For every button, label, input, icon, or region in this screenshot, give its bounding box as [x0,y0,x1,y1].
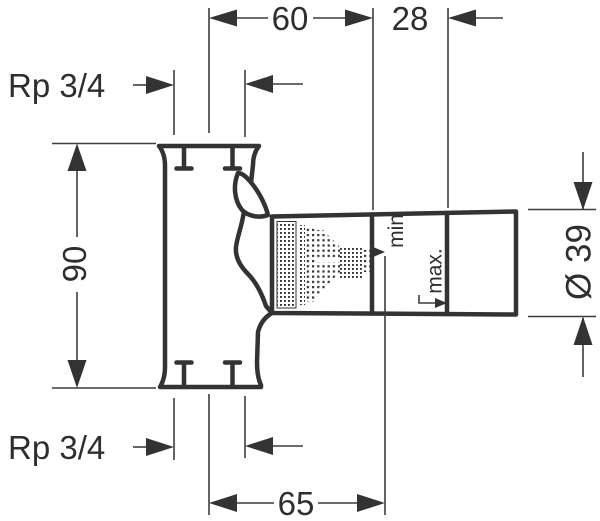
dim-90: 90 [56,144,93,389]
thread-top-label: Rp 3/4 [8,67,105,104]
dim-arrow-down-icon [574,182,593,210]
dim-arrow-right-icon [357,494,385,512]
technical-drawing: 60 28 Rp 3/4 90 Rp 3/4 65 [0,0,600,521]
outlet-teardrop [235,173,268,217]
thread-callout-top: Rp 3/4 [8,67,303,104]
thread-bottom-label: Rp 3/4 [8,429,105,466]
leader-arrow-left-icon [245,437,273,455]
dim-65: 65 [209,485,385,521]
dim-28-label: 28 [392,0,429,37]
leader-arrow-right-icon [146,76,174,94]
dim-60: 60 [209,0,373,37]
dim-diameter-39: Ø 39 [560,152,599,377]
dim-diameter-label: Ø 39 [560,224,599,300]
leader-arrow-left-icon [245,75,273,93]
thread-callout-bottom: Rp 3/4 [8,429,303,466]
dim-arrow-left-icon [209,10,237,27]
min-label: min [385,214,408,248]
dim-arrow-left-icon [209,494,237,512]
dim-arrow-right-icon [345,10,373,27]
leader-arrow-right-icon [146,438,174,456]
dim-arrow-down-icon [68,360,87,388]
dim-arrow-up-icon [68,144,87,172]
valve-dimension-diagram: 60 28 Rp 3/4 90 Rp 3/4 65 [0,0,600,521]
max-label: max. [424,248,447,294]
valve-body-outline [159,146,272,387]
dim-65-label: 65 [278,485,315,521]
dim-arrow-up-icon [574,317,593,346]
valve-body [159,146,272,387]
dim-60-label: 60 [272,0,309,37]
dim-arrow-left-icon [448,10,476,27]
dim-90-label: 90 [56,246,93,283]
